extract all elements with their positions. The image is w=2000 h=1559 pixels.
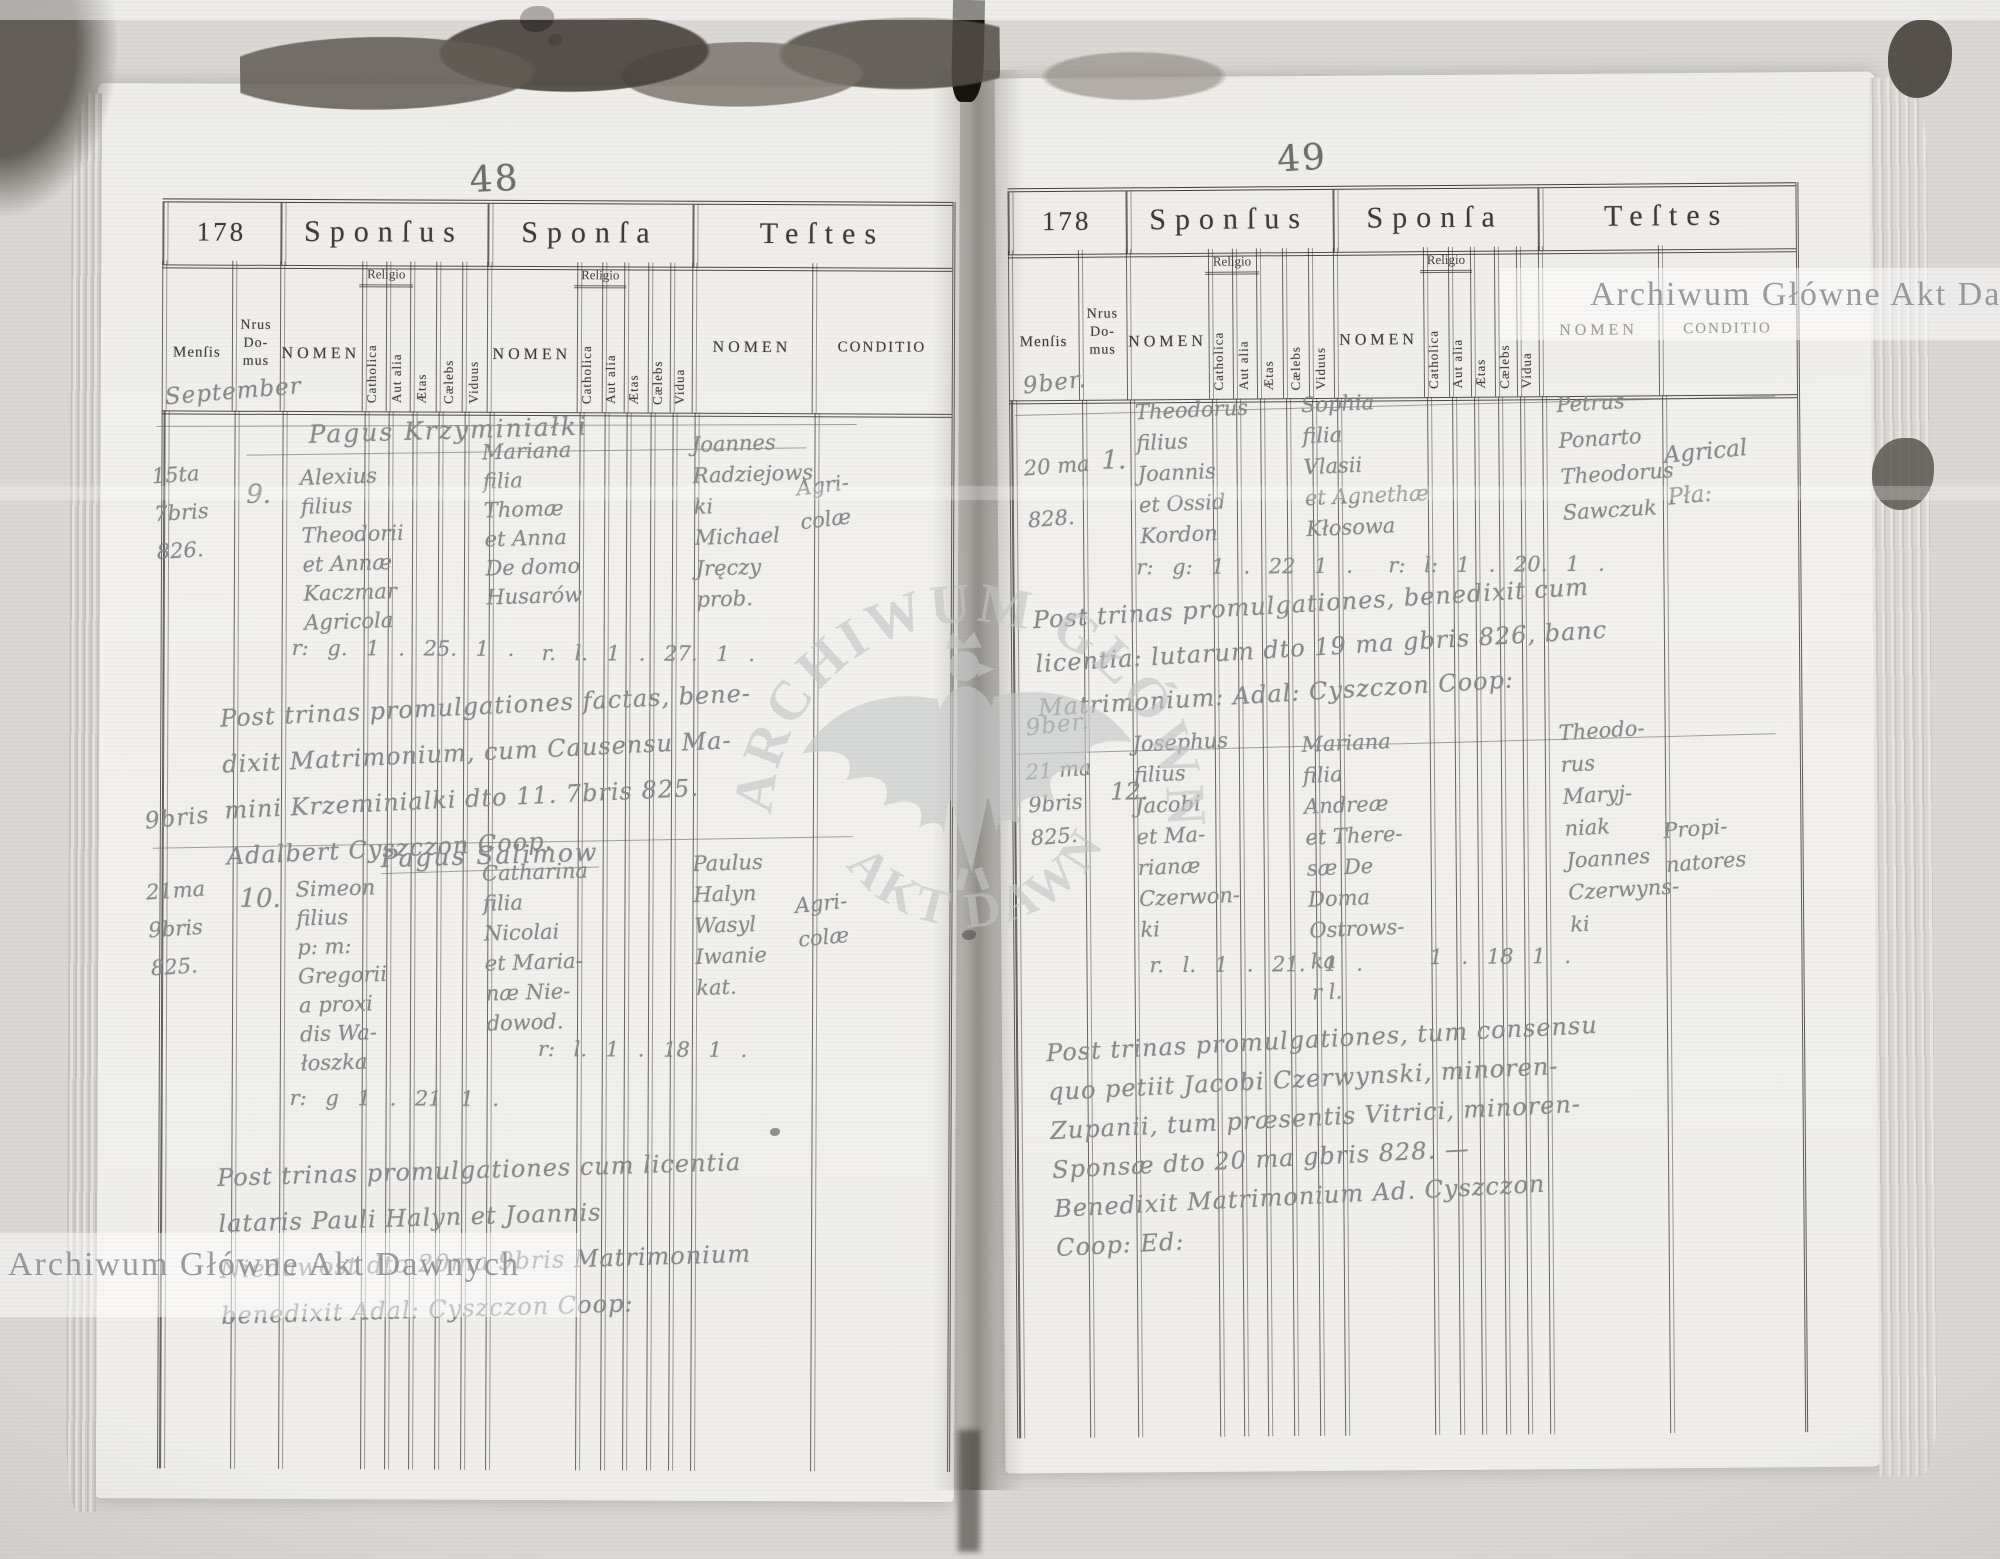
column-rule — [1658, 245, 1664, 395]
column-rule — [1308, 248, 1314, 398]
witness-condition: Agri- colæ — [793, 884, 852, 957]
column-rule — [1007, 192, 1013, 254]
archive-stamp-bottom-left: Archiwum Główne Akt Dawnych — [8, 1246, 520, 1284]
entry-date: 15ta 7bris 826. — [151, 454, 213, 571]
column-rule — [1516, 246, 1522, 396]
page-number: 49 — [1276, 137, 1328, 181]
column-header-nrus-domus: Nrus Do- mus — [232, 317, 280, 371]
bride-name: Mariana filia Thomæ et Anna De domo Husa… — [482, 436, 583, 613]
groom-rite-age-row: r: g 1 . 21 1 . — [290, 1086, 500, 1111]
column-rule — [1126, 249, 1132, 399]
column-rule — [602, 262, 608, 412]
shadow-corner — [0, 0, 120, 220]
column-header-nomen-sponsa: NOMEN — [487, 346, 577, 364]
column-header-caelebs: Cælebs — [441, 359, 457, 403]
bride-name: Sophia filia Vlasii et Agnethæ Kłosowa — [1300, 385, 1430, 545]
entry-date: 21ma 9bris 825. — [145, 870, 211, 988]
table-body-rules — [1009, 394, 1805, 1438]
section-header-testes: Teſtes — [1538, 198, 1796, 234]
groom-name: Simeon filius p: m: Gregorii a proxi dis… — [295, 873, 390, 1079]
column-rule — [1012, 400, 1025, 1438]
column-header-aetas: Ætas — [1261, 360, 1277, 390]
section-header-sponsa: Sponſa — [1333, 200, 1538, 236]
marriage-note: Post trinas promulgationes, tum consensu… — [1045, 1006, 1608, 1268]
column-rule — [1125, 191, 1131, 253]
column-rule — [410, 261, 416, 411]
groom-name: Alexius filius Theodorii et Annæ Kaczmar… — [299, 461, 406, 638]
bride-name: Mariana filia Andreæ et There- sæ De Dom… — [1301, 726, 1410, 1009]
entry-date: 21 ma 9bris 825. — [1024, 752, 1097, 856]
house-number: 10. — [239, 884, 280, 914]
column-rule — [436, 262, 442, 412]
column-rule — [1256, 248, 1262, 398]
column-header-nomen-sponsus: NOMEN — [1127, 333, 1209, 352]
column-rule — [1470, 247, 1476, 397]
column-rule — [648, 263, 654, 413]
column-rule — [1332, 190, 1338, 252]
column-header-viduus: Viduus — [466, 361, 482, 404]
column-rule — [1537, 188, 1543, 250]
column-rule — [624, 262, 630, 412]
entry-date: 20 ma 828. — [1022, 438, 1096, 547]
section-header-testes: Teſtes — [692, 217, 952, 252]
witness-names: Paulus Halyn Wasyl Iwanie kat. — [692, 847, 768, 1004]
section-header-sponsa: Sponſa — [487, 216, 692, 251]
section-header-sponsus: Sponſus — [280, 215, 487, 250]
column-header-nomen-testes: NOMEN — [1538, 321, 1658, 340]
bride-rite-age-row: r. l. 1 . 27. 1 . — [542, 641, 755, 666]
column-rule — [1282, 248, 1288, 398]
column-rule — [1008, 250, 1014, 400]
groom-name: Josephus filius Jacobi et Ma- rianæ Czer… — [1132, 725, 1242, 946]
witness-names: Joannes Radziejows ki Michael Jręczy pro… — [691, 426, 817, 616]
witness-condition: Agri- colæ — [794, 465, 854, 539]
column-rule — [1333, 248, 1339, 398]
groom-rite-age-row: r: g: 1 . 22 1 . — [1136, 554, 1353, 580]
ink-spot — [962, 930, 976, 940]
section-header-sponsus: Sponſus — [1126, 202, 1333, 238]
column-header-aut-alia: Aut alia — [389, 354, 405, 404]
register-page-left: 48 178 Sponſus Sponſa Teſtes Menſis Nrus… — [92, 83, 960, 1502]
column-header-nomen-testes: NOMEN — [692, 339, 812, 358]
column-header-viduus: Viduus — [1313, 347, 1329, 390]
column-rule — [462, 262, 468, 412]
form-number: 178 — [1008, 205, 1126, 237]
bride-rite-age-row: r: l. 1 . 18 1 . — [538, 1037, 747, 1062]
column-rule — [1082, 400, 1095, 1438]
house-number: 1. — [1101, 445, 1126, 475]
house-number: 9. — [246, 480, 271, 510]
column-rule — [487, 204, 493, 266]
column-rule — [362, 261, 368, 411]
groom-rite-age-row: r: g. 1 . 25. 1 . — [292, 636, 515, 661]
column-rule — [692, 205, 698, 267]
column-header-mensis: Menſis — [1009, 334, 1079, 352]
column-rule — [386, 261, 392, 411]
column-header-aetas: Ætas — [414, 374, 430, 404]
column-header-nomen-sponsa: NOMEN — [1334, 331, 1424, 350]
gutter-shadow — [958, 1430, 980, 1552]
witness-names: Petrus Ponarto Theodorus Sawczuk — [1555, 380, 1676, 531]
scanned-register-photo: 48 178 Sponſus Sponſa Teſtes Menſis Nrus… — [0, 0, 2000, 1559]
witness-condition: Propi- natores — [1662, 808, 1747, 882]
column-rule — [280, 203, 286, 265]
column-rule — [162, 202, 168, 264]
column-rule — [670, 263, 676, 413]
column-header-nrus-domus: Nrus Do- mus — [1078, 305, 1126, 359]
column-rule — [812, 263, 818, 413]
page-number: 48 — [469, 158, 521, 201]
form-number: 178 — [162, 216, 280, 248]
column-header-conditio: CONDITIO — [1658, 320, 1796, 338]
column-header-mensis: Menſis — [162, 344, 232, 361]
column-rule — [577, 262, 583, 412]
archive-stamp-top-right: Archiwum Główne Akt Dawnych — [1590, 276, 2000, 314]
witness-condition: Agrical Pła: — [1662, 427, 1753, 519]
stain — [548, 34, 562, 46]
column-header-conditio: CONDITIO — [812, 339, 952, 357]
column-rule — [692, 263, 698, 413]
groom-name: Theodorus filius Joannis et Ossid Kordon — [1134, 393, 1254, 553]
column-rule — [1494, 247, 1500, 397]
column-header-band: Menſis Nrus Do- mus NOMEN Religio Cathol… — [1008, 244, 1797, 404]
column-header-caelebs: Cælebs — [1288, 346, 1304, 390]
column-rule — [487, 262, 493, 412]
bride-rite-age-row: 1 . 18 1 . — [1429, 944, 1571, 969]
column-header-nomen-sponsus: NOMEN — [280, 345, 362, 363]
stain — [1888, 20, 1952, 98]
column-rule — [1538, 246, 1544, 396]
column-header-aut-alia: Aut alia — [1236, 341, 1252, 391]
scan-band — [0, 0, 2000, 20]
stain — [520, 6, 554, 32]
marriage-note: Post trinas promulgationes cum licentia … — [216, 1139, 753, 1339]
book-spine — [951, 0, 985, 102]
bride-name: Catharina filia Nicolai et Maria- næ Nie… — [482, 855, 593, 1038]
